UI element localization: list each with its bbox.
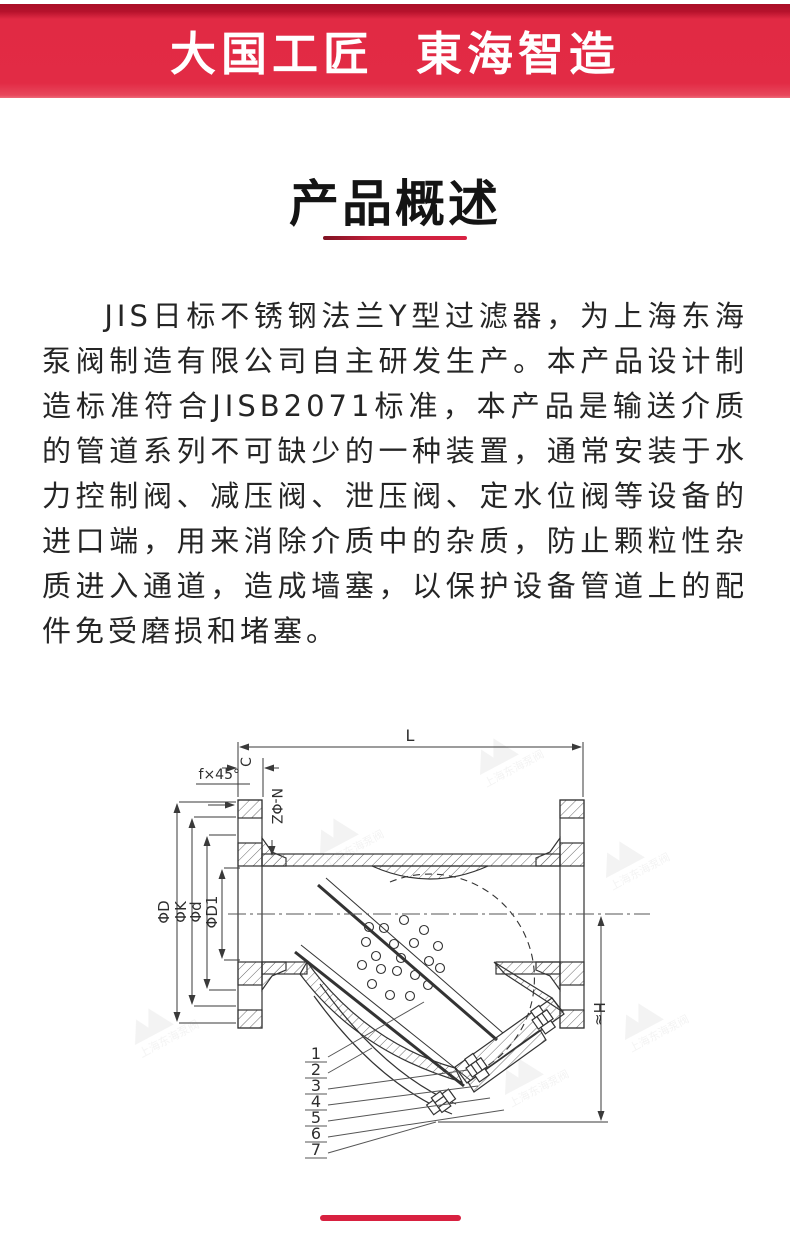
part-number-7: 7 <box>311 1140 321 1159</box>
header-banner: 大国工匠 東海智造 <box>0 4 790 98</box>
dim-label-flange-od: ΦD <box>155 900 173 923</box>
dim-label-L: L <box>406 726 415 745</box>
dim-label-C: C <box>239 757 255 767</box>
product-page: 大国工匠 東海智造 产品概述 JIS日标不锈钢法兰Y型过滤器，为上海东海泵阀制造… <box>0 0 790 1243</box>
dim-label-height: H≈ <box>590 1002 608 1026</box>
header-title: 大国工匠 東海智造 <box>170 18 620 84</box>
section-title: 产品概述 <box>0 164 790 236</box>
section-title-underline <box>323 236 467 240</box>
dim-label-bolt-holes: N-ΦZ <box>268 788 284 824</box>
dimension-labels: L C f×45° N-ΦZ ΦD ΦK Φd ΦD1 H≈ <box>155 726 608 1026</box>
product-description: JIS日标不锈钢法兰Y型过滤器，为上海东海泵阀制造有限公司自主研发生产。本产品设… <box>42 294 748 654</box>
dim-label-chamfer: f×45° <box>199 767 240 783</box>
dim-label-bore: ΦD1 <box>203 896 221 929</box>
strainer-cross-section-svg: 上海东海泵阀 上海东海泵阀 上海东海泵阀 上海东海泵阀 上海东海泵阀 上海东海泵… <box>0 690 790 1170</box>
cap-assembly <box>425 998 564 1117</box>
strainer-drawing: 上海东海泵阀 上海东海泵阀 上海东海泵阀 上海东海泵阀 上海东海泵阀 上海东海泵… <box>0 690 790 1170</box>
footer-red-bar <box>320 1215 461 1221</box>
